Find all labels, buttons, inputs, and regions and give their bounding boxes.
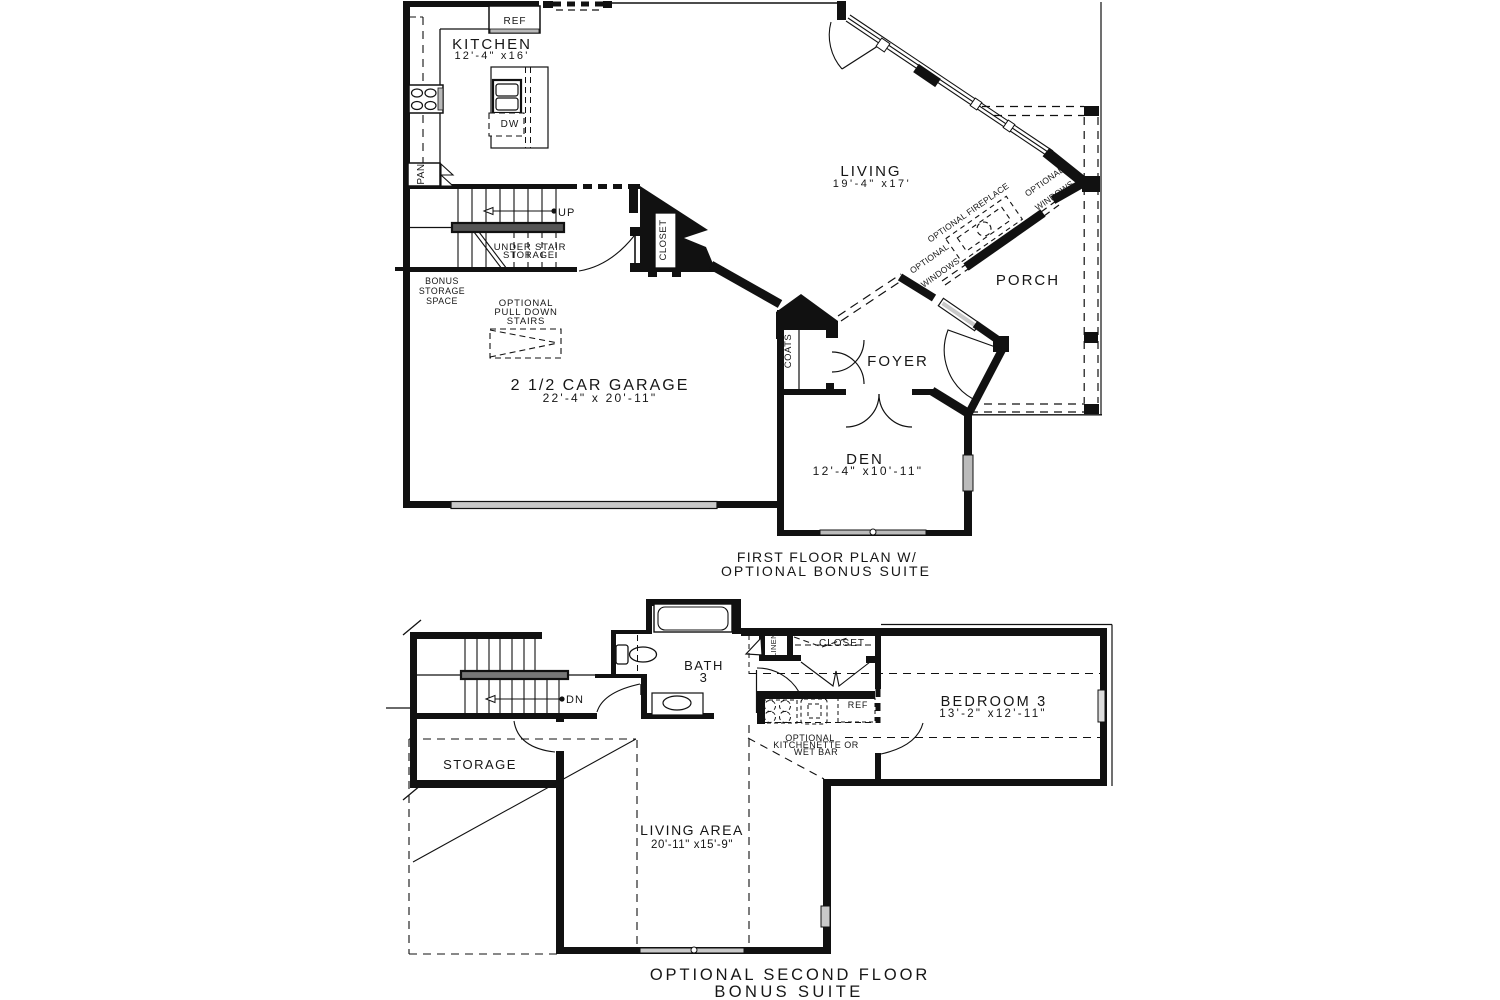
svg-text:CLOSET: CLOSET (819, 638, 865, 649)
svg-text:LINEN: LINEN (769, 633, 778, 657)
svg-text:FOYER: FOYER (867, 353, 929, 370)
svg-text:SPACE: SPACE (426, 296, 458, 306)
svg-text:STAIRS: STAIRS (507, 316, 545, 327)
svg-text:DW: DW (501, 119, 520, 130)
svg-text:OPTIONAL BONUS SUITE: OPTIONAL BONUS SUITE (721, 563, 931, 579)
svg-text:PORCH: PORCH (996, 272, 1060, 289)
svg-text:REF: REF (848, 700, 868, 710)
svg-text:COATS: COATS (783, 334, 794, 369)
svg-text:WET BAR: WET BAR (794, 747, 838, 757)
svg-text:REF: REF (504, 16, 527, 27)
svg-text:12'-4" x16': 12'-4" x16' (454, 50, 529, 62)
svg-text:22'-4" x 20'-11": 22'-4" x 20'-11" (543, 391, 658, 405)
svg-text:UP: UP (558, 207, 575, 219)
svg-text:LIVING AREA: LIVING AREA (640, 822, 744, 838)
svg-text:19'-4" x17': 19'-4" x17' (833, 178, 911, 190)
svg-text:PAN: PAN (416, 163, 427, 184)
svg-text:STORAGE: STORAGE (443, 757, 517, 772)
svg-text:STORAGE: STORAGE (503, 250, 555, 261)
svg-text:BONUS SUITE: BONUS SUITE (714, 983, 863, 1000)
svg-text:13'-2" x12'-11": 13'-2" x12'-11" (939, 708, 1047, 720)
svg-text:BONUS: BONUS (425, 276, 459, 286)
svg-text:OPTIONAL SECOND FLOOR: OPTIONAL SECOND FLOOR (650, 966, 930, 984)
svg-text:20'-11" x15'-9": 20'-11" x15'-9" (651, 839, 733, 851)
svg-text:CLOSET: CLOSET (658, 219, 669, 260)
svg-text:DN: DN (566, 694, 584, 706)
svg-text:12'-4" x10'-11": 12'-4" x10'-11" (813, 464, 924, 478)
svg-text:STORAGE: STORAGE (419, 286, 465, 296)
svg-text:3: 3 (700, 670, 709, 685)
